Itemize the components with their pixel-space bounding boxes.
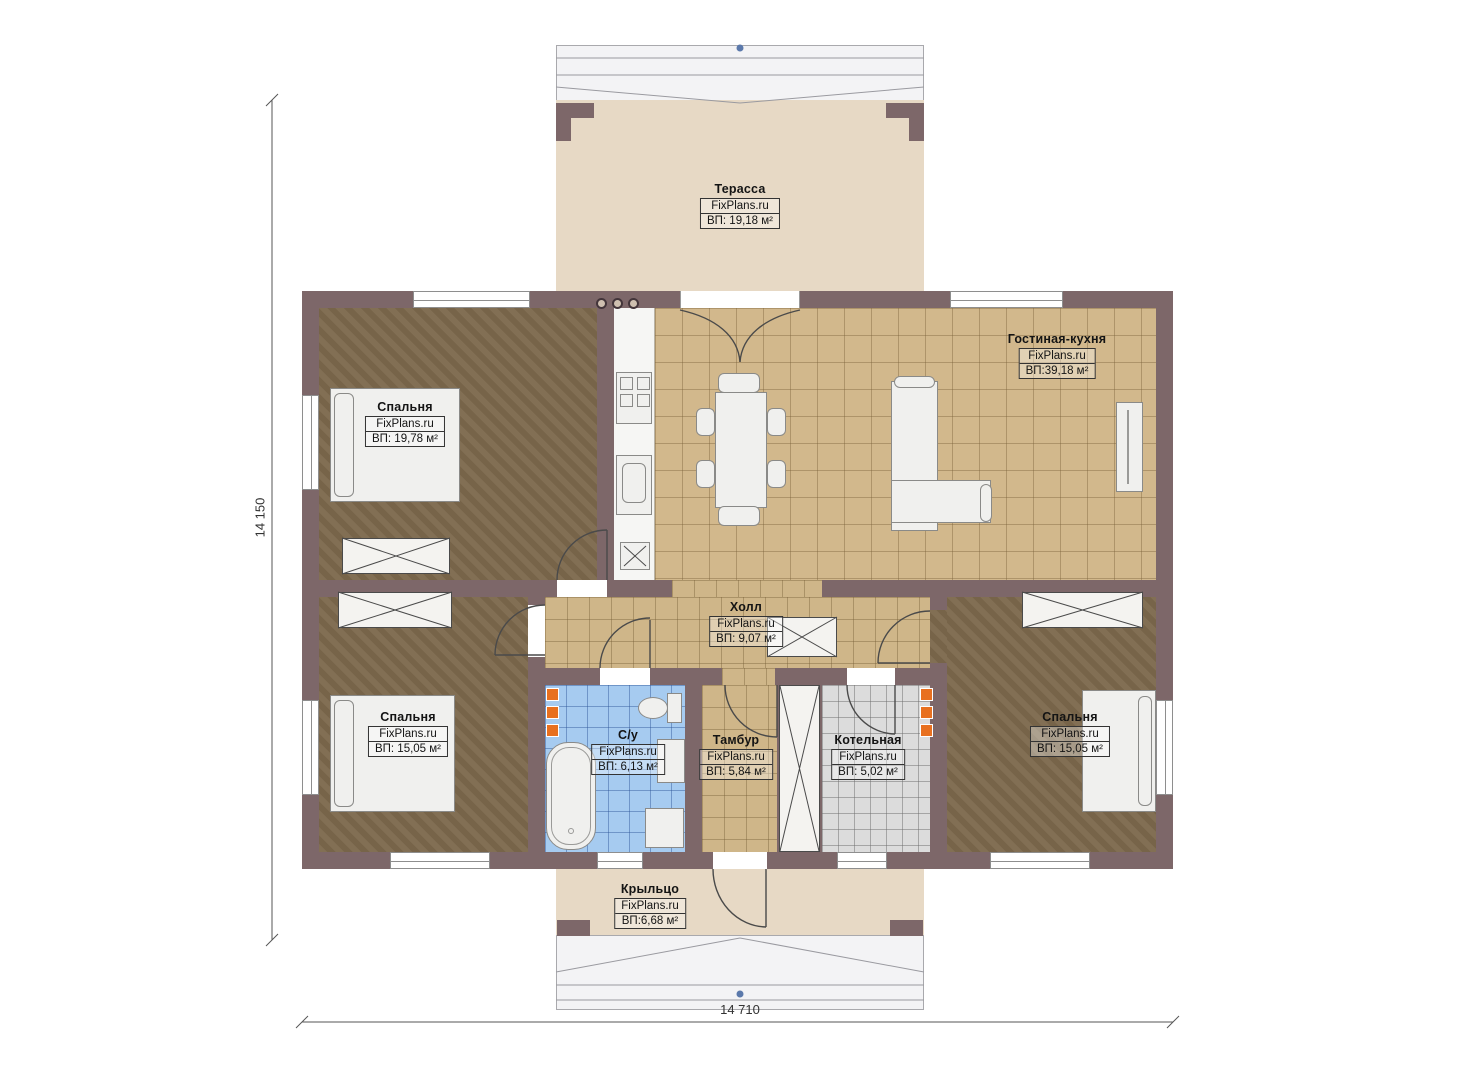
room-name: Спальня — [365, 400, 445, 414]
window — [302, 395, 319, 490]
terrace-door-opening — [680, 291, 800, 308]
room-area: ВП: 19,18 м² — [701, 214, 779, 228]
window — [413, 291, 530, 308]
room-area: ВП: 6,13 м² — [592, 760, 664, 774]
dimension-width-label: 14 710 — [700, 1002, 780, 1017]
porch-roof — [556, 935, 924, 1010]
radiator-icon — [546, 706, 559, 719]
bedroom2-door-opening — [528, 605, 545, 657]
brand-watermark: FixPlans.ru — [369, 727, 447, 742]
sofa-armrest — [894, 376, 935, 388]
room-label-tambour: Тамбур FixPlans.ruВП: 5,84 м² — [699, 733, 773, 780]
bedroom3-door-opening — [930, 610, 947, 663]
room-label-bedroom3: Спальня FixPlans.ruВП: 15,05 м² — [1030, 710, 1110, 757]
closet-shaft — [779, 685, 820, 852]
burner — [637, 377, 650, 390]
room-area: ВП: 15,05 м² — [369, 742, 447, 756]
burner — [620, 394, 633, 407]
toilet-tank — [667, 693, 682, 723]
room-label-hall: Холл FixPlans.ruВП: 9,07 м² — [709, 600, 783, 647]
chair — [696, 408, 715, 436]
pillow — [334, 393, 354, 497]
window — [1156, 700, 1173, 795]
chair — [718, 506, 760, 526]
pillow — [1138, 696, 1152, 806]
room-name: Спальня — [1030, 710, 1110, 724]
room-area: ВП: 9,07 м² — [710, 632, 782, 646]
window — [837, 852, 887, 869]
radiator-icon — [920, 724, 933, 737]
room-label-bathroom: С/у FixPlans.ruВП: 6,13 м² — [591, 728, 665, 775]
room-label-bedroom2: Спальня FixPlans.ruВП: 15,05 м² — [368, 710, 448, 757]
boiler-door-opening — [847, 668, 895, 685]
kitchen-cabinet — [620, 542, 650, 570]
brand-watermark: FixPlans.ru — [366, 417, 444, 432]
sink-basin — [622, 463, 646, 503]
brand-watermark: FixPlans.ru — [832, 750, 904, 765]
brand-watermark: FixPlans.ru — [1020, 349, 1095, 364]
tv-screen — [1127, 410, 1129, 484]
sofa-armrest — [980, 484, 992, 522]
room-area: ВП: 15,05 м² — [1031, 742, 1109, 756]
vent-icon — [628, 298, 639, 309]
room-label-porch: Крыльцо FixPlans.ruВП:6,68 м² — [614, 882, 686, 929]
radiator-icon — [920, 706, 933, 719]
brand-watermark: FixPlans.ru — [710, 617, 782, 632]
window — [597, 852, 643, 869]
brand-watermark: FixPlans.ru — [615, 899, 685, 914]
window — [990, 852, 1090, 869]
porch-post — [557, 920, 590, 936]
dimension-height-label: 14 150 — [253, 488, 268, 548]
chair — [767, 460, 786, 488]
room-label-terrace: Терасса FixPlans.ruВП: 19,18 м² — [700, 182, 780, 229]
brand-watermark: FixPlans.ru — [1031, 727, 1109, 742]
room-area: ВП:6,68 м² — [615, 914, 685, 928]
entrance-door-opening — [713, 852, 767, 869]
brand-watermark: FixPlans.ru — [701, 199, 779, 214]
radiator-icon — [546, 688, 559, 701]
room-area: ВП:39,18 м² — [1020, 364, 1095, 378]
chair — [696, 460, 715, 488]
room-name: Терасса — [700, 182, 780, 196]
bedroom1-door-opening — [557, 580, 607, 597]
room-area: ВП: 5,84 м² — [700, 765, 772, 779]
hall-living-opening — [672, 580, 822, 597]
room-name: С/у — [591, 728, 665, 742]
window — [950, 291, 1063, 308]
wardrobe — [338, 592, 452, 628]
window — [390, 852, 490, 869]
vent-icon — [612, 298, 623, 309]
vent-icon — [596, 298, 607, 309]
terrace-post — [909, 103, 924, 141]
terrace-roof — [556, 45, 924, 103]
chair — [767, 408, 786, 436]
room-label-bedroom1: Спальня FixPlans.ruВП: 19,78 м² — [365, 400, 445, 447]
room-name: Тамбур — [699, 733, 773, 747]
room-area: ВП: 19,78 м² — [366, 432, 444, 446]
pillow — [334, 700, 354, 807]
bathtub-drain — [568, 828, 574, 834]
bathroom-door-opening — [600, 668, 650, 685]
chair — [718, 373, 760, 393]
room-label-boiler: Котельная FixPlans.ruВП: 5,02 м² — [831, 733, 905, 780]
radiator-icon — [920, 688, 933, 701]
washing-machine — [645, 808, 684, 848]
brand-watermark: FixPlans.ru — [592, 745, 664, 760]
sofa — [891, 480, 991, 523]
terrace-post — [556, 103, 571, 141]
room-name: Котельная — [831, 733, 905, 747]
room-label-living: Гостиная-кухня FixPlans.ruВП:39,18 м² — [1008, 332, 1107, 379]
floor-plan: Ст.М. — [0, 0, 1474, 1080]
window — [302, 700, 319, 795]
radiator-icon — [546, 724, 559, 737]
kitchen-counter — [614, 308, 655, 580]
porch-post — [890, 920, 923, 936]
porch-floor — [556, 869, 924, 935]
room-name: Крыльцо — [614, 882, 686, 896]
wardrobe — [342, 538, 450, 574]
room-name: Спальня — [368, 710, 448, 724]
wardrobe — [1022, 592, 1143, 628]
room-name: Холл — [709, 600, 783, 614]
burner — [620, 377, 633, 390]
burner — [637, 394, 650, 407]
brand-watermark: FixPlans.ru — [700, 750, 772, 765]
tambour-door-opening — [722, 668, 775, 685]
dining-table — [715, 392, 767, 508]
toilet-bowl — [638, 697, 668, 719]
room-area: ВП: 5,02 м² — [832, 765, 904, 779]
room-name: Гостиная-кухня — [1008, 332, 1107, 346]
tv-unit — [1116, 402, 1143, 492]
